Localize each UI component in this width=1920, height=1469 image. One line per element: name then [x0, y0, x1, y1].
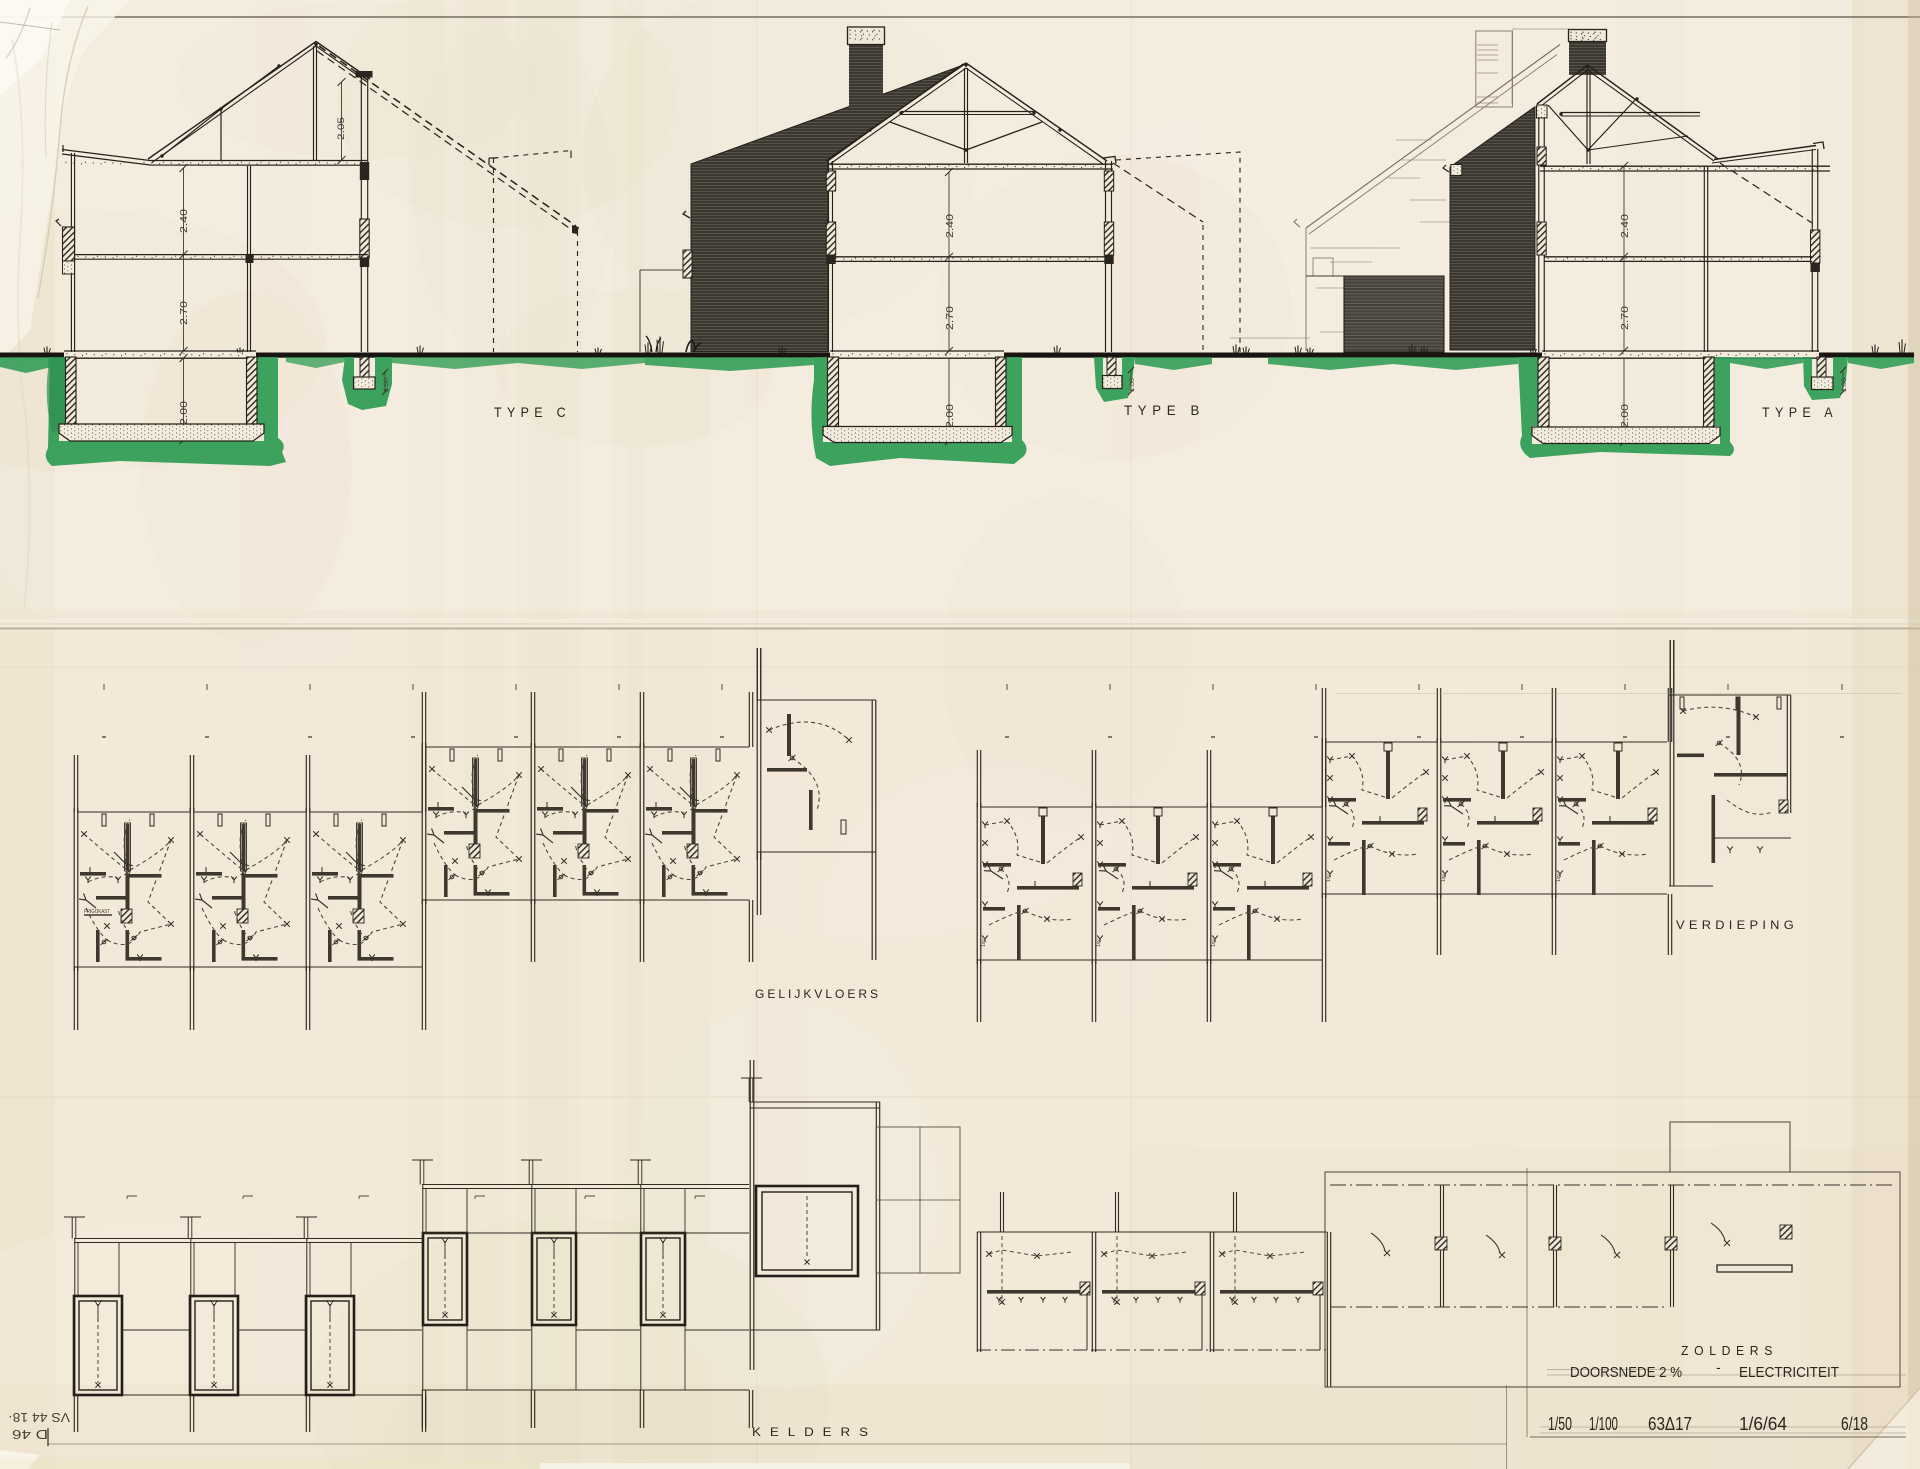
svg-text:1.00: 1.00 [384, 377, 390, 392]
svg-text:1/6/64: 1/6/64 [1739, 1414, 1787, 1434]
svg-text:1xy: 1xy [981, 939, 987, 947]
svg-text:63Δ17: 63Δ17 [1648, 1414, 1692, 1434]
svg-text:ZOLDERS: ZOLDERS [1681, 1343, 1778, 1358]
svg-text:2.05: 2.05 [336, 117, 347, 140]
svg-text:-: - [1716, 1359, 1721, 1375]
svg-text:TYPE B: TYPE B [1124, 402, 1205, 418]
svg-text:2.40: 2.40 [1620, 213, 1631, 238]
svg-text:GELIJKVLOERS: GELIJKVLOERS [755, 987, 881, 1001]
svg-text:6/18: 6/18 [1841, 1414, 1868, 1434]
svg-text:1/100: 1/100 [1589, 1414, 1618, 1434]
svg-text:KELDERS: KELDERS [752, 1425, 877, 1439]
svg-text:2.00: 2.00 [179, 400, 190, 425]
svg-text:2.00: 2.00 [1620, 403, 1631, 428]
svg-text:1.00: 1.00 [1842, 377, 1848, 392]
svg-text:1/50: 1/50 [1548, 1414, 1572, 1434]
svg-text:2.70: 2.70 [1620, 305, 1631, 330]
svg-text:2.70: 2.70 [945, 305, 956, 330]
svg-text:2.40: 2.40 [179, 208, 190, 233]
svg-text:1xy: 1xy [1556, 874, 1562, 882]
svg-text:FRIGOKAST: FRIGOKAST [84, 909, 110, 915]
svg-text:D 46: D 46 [12, 1427, 48, 1442]
svg-text:1xy: 1xy [1096, 939, 1102, 947]
svg-text:ELECTRICITEIT: ELECTRICITEIT [1739, 1364, 1839, 1381]
svg-text:VERDIEPING: VERDIEPING [1676, 918, 1798, 932]
svg-text:2.40: 2.40 [945, 213, 956, 238]
svg-text:2.70: 2.70 [179, 300, 190, 325]
svg-text:VS 44 18·: VS 44 18· [8, 1410, 70, 1425]
svg-text:1xy: 1xy [1326, 874, 1332, 882]
svg-text:1.00: 1.00 [1130, 377, 1136, 392]
svg-text:DOORSNEDE 2 %: DOORSNEDE 2 % [1570, 1364, 1682, 1381]
svg-text:1xy: 1xy [1441, 874, 1447, 882]
svg-text:2.00: 2.00 [945, 403, 956, 428]
svg-text:TYPE A: TYPE A [1762, 404, 1838, 420]
svg-text:1xy: 1xy [1211, 939, 1217, 947]
svg-text:TYPE C: TYPE C [494, 404, 571, 420]
